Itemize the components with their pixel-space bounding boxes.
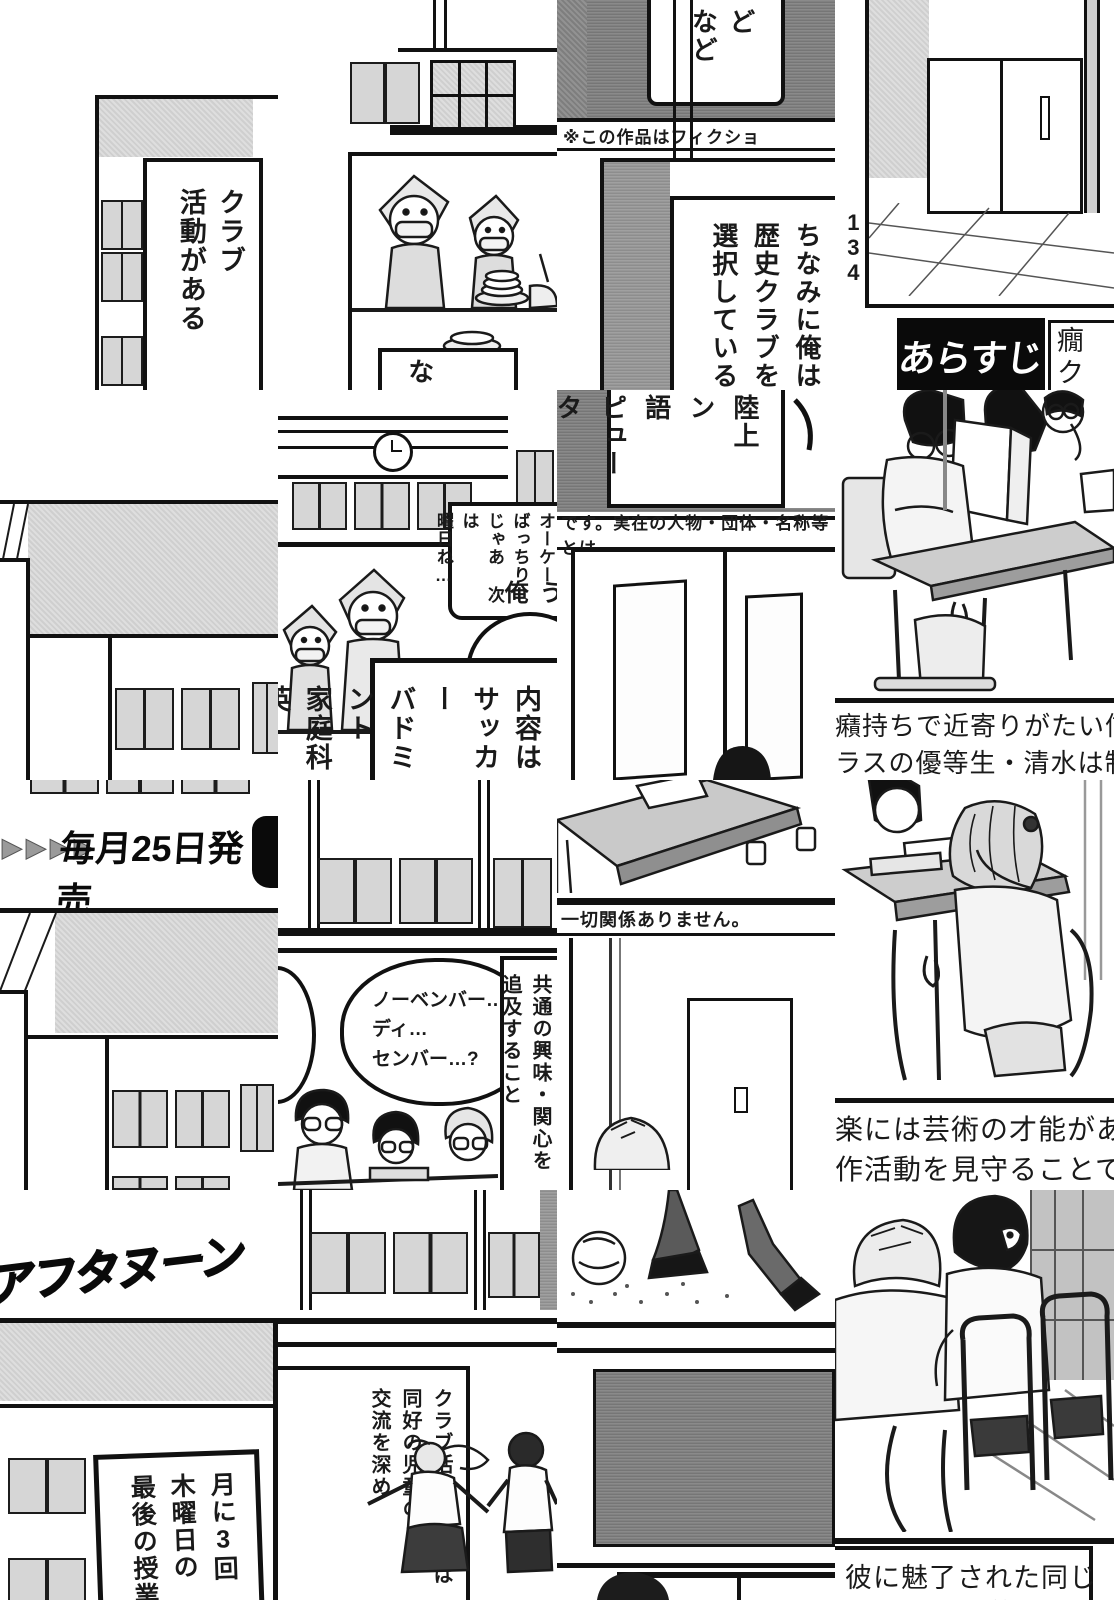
tile-r1c1: クラブ 活動がある <box>0 0 278 390</box>
window-grid <box>350 62 420 124</box>
window-band <box>318 858 473 924</box>
bubble-sliver <box>0 990 28 1190</box>
club-list-fragment-box: 陸上 ン 語 ピュータ <box>607 390 785 508</box>
ending-caption-box: 彼に魅了された同じ 5の夏休みを終えた。 <box>835 1546 1093 1600</box>
tile-r3c4: 楽には芸術の才能がある。 作活動を見守ることで小5 <box>835 780 1114 1190</box>
dark-edge <box>540 1190 557 1310</box>
note-box: 共通の興味・関心を 追及すること <box>500 956 557 1190</box>
student-head <box>707 742 777 780</box>
wall-post-right <box>478 780 490 928</box>
boys-on-chairs-illustration <box>835 1190 1114 1532</box>
disclaimer-strip: です。実在の人物・団体・名称等とは <box>557 516 835 550</box>
halftone-roof <box>28 504 278 634</box>
synopsis-fragment-box: 癇 ク <box>1048 320 1114 390</box>
window-right <box>240 1084 274 1152</box>
tile-r2c1 <box>0 390 278 780</box>
floor-lines <box>869 203 1114 296</box>
speech-bubble: ど など <box>647 0 785 106</box>
speech-text: ちなみに俺は 歴史クラブを 選択している <box>702 222 827 390</box>
afternoon-logo: アフタヌーン <box>0 1217 247 1316</box>
ending-line-2: 5の夏休みを終えた。 <box>835 1592 1101 1600</box>
halftone-band <box>99 99 253 157</box>
window-right <box>493 858 552 928</box>
manga-collage-page: クラブ 活動がある <box>0 0 1114 1600</box>
reading-panel <box>835 390 1114 703</box>
synopsis-text-2: ラスの優等生・清水は制 <box>835 743 1114 780</box>
study-group-illustration <box>278 1080 498 1190</box>
shelf-line <box>398 48 557 52</box>
wall-post-right <box>474 1190 486 1310</box>
pillar <box>1084 0 1100 213</box>
boy-head <box>587 1108 677 1170</box>
club-list-text: 内容は サッカー バドミント 家庭科 英 合唱 コン <box>278 685 546 780</box>
disclaimer-strip: 一切関係ありません。 <box>557 902 835 936</box>
window-column <box>0 1408 96 1600</box>
window-right <box>516 450 554 510</box>
student-head <box>593 1570 673 1600</box>
door-panel <box>613 579 687 780</box>
tile-r3c3: 一切関係ありません。 <box>557 780 835 1190</box>
speech-text: な <box>400 358 438 386</box>
disclaimer-strip: ※この作品はフィクショ <box>557 118 835 151</box>
page-number: 134 <box>837 210 869 285</box>
panel-top <box>278 948 557 953</box>
hallway-panel <box>557 938 835 1190</box>
cabinet-grid <box>430 60 516 130</box>
girl-back-illustration <box>835 780 1114 1093</box>
speech-text: ど など <box>684 8 759 64</box>
dark-edge <box>557 0 587 118</box>
disclaimer-text: ※この作品はフィクショ <box>563 123 760 148</box>
synopsis-line-2: 作活動を見守ることで小5 <box>835 1150 1114 1186</box>
speech-bubble: 月に3回 木曜日の 最後の授業 <box>93 1449 265 1600</box>
magazine-logo-box: アフタヌーン <box>0 1220 248 1312</box>
speech-text: クラブ 活動がある <box>171 188 249 333</box>
clock <box>373 432 413 472</box>
note-text: 共通の興味・関心を 追及すること <box>495 974 555 1172</box>
tile-r3c2: ノーベンバー… ディ… センバー…? 共通の興味・関心を 追及すること <box>278 780 557 1190</box>
partial-logo-glyph <box>252 816 278 888</box>
hair-stroke <box>785 390 835 508</box>
eave-line <box>0 634 278 638</box>
tile-r4c1: アフタヌーン 月に3回 木曜日の 最後の授業 <box>0 1190 278 1600</box>
synopsis-label-box: あらすじ <box>897 318 1045 390</box>
classroom-panel <box>571 548 835 780</box>
tile-r4c4: 彼に魅了された同じ 5の夏休みを終えた。 <box>835 1190 1114 1600</box>
synopsis-text-2: 作活動を見守ることで小5 <box>835 1148 1114 1188</box>
students-reading-illustration <box>835 390 1114 693</box>
synopsis-line-1: 楽には芸術の才能がある。 <box>835 1110 1114 1146</box>
tile-r1c4: 134 あらすじ 癇 ク <box>835 0 1114 390</box>
pole-lines <box>673 0 693 160</box>
disclaimer-text: 一切関係ありません。 <box>561 906 750 932</box>
synopsis-line-1: 癪持ちで近寄りがたい信 <box>835 708 1114 741</box>
wall-post <box>433 0 447 52</box>
running-kids-illustration <box>338 1420 557 1600</box>
desk-corner-illustration <box>557 780 835 893</box>
chairs-panel <box>835 1190 1114 1544</box>
art-panel <box>835 780 1114 1103</box>
wall-post <box>105 1039 109 1190</box>
speech-text: ノーベンバー… ディ… センバー…? <box>372 986 505 1074</box>
synopsis-fragment: 癇 ク <box>1057 325 1084 390</box>
edge-fragment-text: う 俺 <box>495 580 557 606</box>
figure-corner <box>785 390 835 508</box>
window-band <box>310 1232 468 1294</box>
tile-r2c3: る を 陸上 ン 語 ピュータ です。実在の人物・団体・名称等とは <box>557 390 835 780</box>
classroom-panel <box>865 0 1114 308</box>
halftone-roof <box>55 913 278 1033</box>
window-band-2 <box>112 1176 230 1190</box>
desk-panel <box>557 780 835 903</box>
synopsis-label: あらすじ <box>897 328 1046 382</box>
wall-band <box>278 430 508 479</box>
window-column <box>99 160 143 390</box>
soccer-panel <box>557 1190 835 1328</box>
club-list-box: 内容は サッカー バドミント 家庭科 英 合唱 コン <box>370 658 557 780</box>
bubble-sliver <box>0 558 30 780</box>
speech-box: ちなみに俺は 歴史クラブを 選択している <box>670 196 835 390</box>
tile-r1c2: な <box>278 0 557 390</box>
speech-bubble: な <box>378 348 518 390</box>
eave-line <box>0 1035 278 1039</box>
window-fragment <box>30 780 250 794</box>
locker-door <box>687 998 793 1190</box>
window-band-1 <box>112 1090 230 1148</box>
synopsis-text-1: 楽には芸術の才能がある。 <box>835 1108 1114 1148</box>
window-right <box>252 682 278 754</box>
soccer-ball-illustration <box>557 1190 835 1316</box>
wall-shade <box>869 0 929 178</box>
window-band <box>115 688 240 750</box>
club-list-fragment: 陸上 ン 語 ピュータ <box>557 394 767 504</box>
ending-line-1: 彼に魅了された同じ <box>845 1556 1097 1595</box>
blackboard <box>593 1369 835 1547</box>
synopsis-text-1: 癪持ちで近寄りがたい信 <box>835 706 1114 743</box>
tile-r2c2: オーケー ばっちり じゃあ 次は 曜日ね… 内容は サッカー バドミント 家庭科… <box>278 390 557 780</box>
speech-bubble: クラブ 活動がある <box>143 158 263 390</box>
halftone-band <box>0 1323 273 1401</box>
cabinet <box>927 58 1083 214</box>
tile-r4c3 <box>557 1190 835 1600</box>
tile-r1c3: ど など ※この作品はフィクショ ちなみに俺は 歴史クラブを 選択している <box>557 0 835 390</box>
speech-text: 月に3回 木曜日の 最後の授業 <box>121 1471 246 1600</box>
board-panel <box>557 1348 835 1568</box>
halftone-wall <box>604 162 670 390</box>
synopsis-line-2: ラスの優等生・清水は制 <box>835 745 1114 778</box>
window-right <box>488 1232 540 1298</box>
panel-border <box>278 928 557 936</box>
wall-post <box>108 638 112 780</box>
tile-r3c1: ▶▶▶▶ 毎月25日発売 <box>0 780 278 1190</box>
tile-r2c4: 癪持ちで近寄りがたい信 ラスの優等生・清水は制 <box>835 390 1114 780</box>
tile-r4c2: クラブ活動の目的は 同好の児童の 交流を深め <box>278 1190 557 1600</box>
band-line <box>278 1318 557 1324</box>
